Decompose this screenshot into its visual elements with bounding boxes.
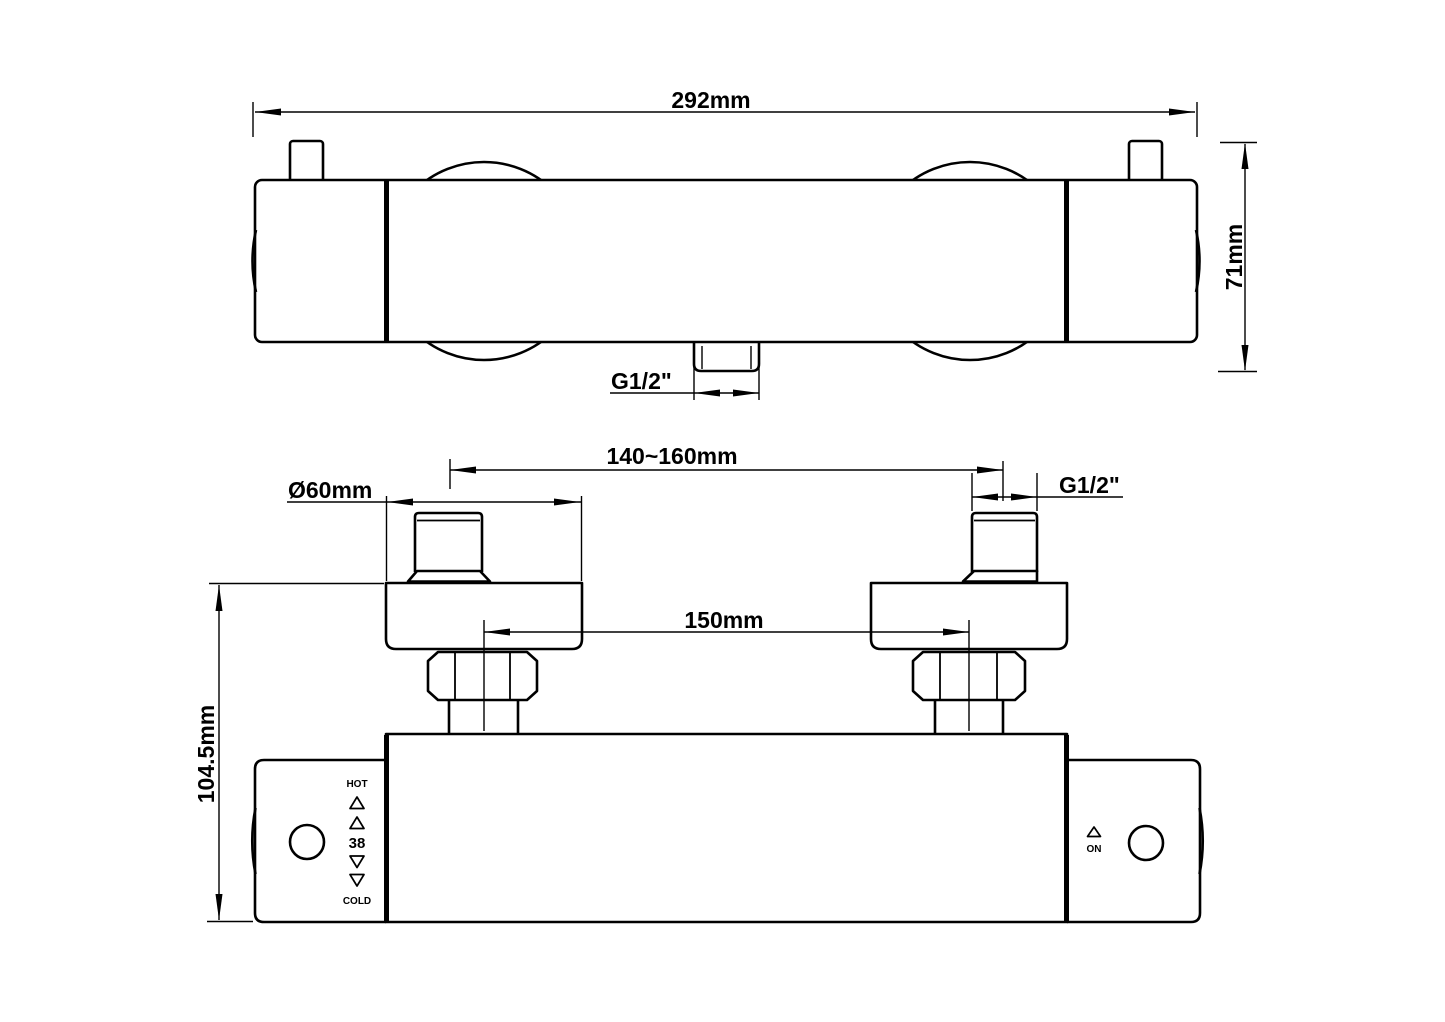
inlet-assembly-right xyxy=(871,513,1067,734)
dim-104-5-arrow-top xyxy=(216,585,223,611)
inlet-spacing-label: 150mm xyxy=(684,607,763,633)
dim-140-160-arrow-right xyxy=(977,467,1003,474)
pipe-connector-right xyxy=(972,513,1037,572)
cold-label: COLD xyxy=(343,896,371,907)
dim-292-arrow-left xyxy=(255,109,281,116)
dim-inlet-arrow-left xyxy=(972,494,998,501)
hot-label: HOT xyxy=(346,779,367,790)
temp-38-label: 38 xyxy=(349,835,366,852)
dim-140-160-arrow-left xyxy=(450,467,476,474)
outlet-thread-label: G1/2" xyxy=(611,368,672,394)
outlet-stub xyxy=(694,343,759,371)
flange-diameter-label: Ø60mm xyxy=(288,477,372,503)
dim-71-arrow-top xyxy=(1242,143,1249,169)
dim-60-arrow-right xyxy=(554,499,580,506)
dim-292: 292mm xyxy=(253,87,1197,137)
dim-inlet-arrow-right xyxy=(1011,494,1037,501)
flow-endcap-right xyxy=(1067,760,1200,922)
top-view: 292mm 71mm G1/2" xyxy=(253,87,1258,400)
dim-140-160: 140~160mm xyxy=(450,443,1003,501)
inlet-thread-label: G1/2" xyxy=(1059,472,1120,498)
on-label: ON xyxy=(1087,844,1102,855)
technical-drawing-page: 292mm 71mm G1/2" xyxy=(0,0,1445,1022)
valve-body-front xyxy=(386,734,1067,922)
dim-104-5-arrow-bottom xyxy=(216,894,223,920)
mount-tab-right xyxy=(1129,141,1162,182)
shower-valve-drawing: 292mm 71mm G1/2" xyxy=(0,0,1445,1022)
front-view: HOT 38 COLD ON 140~160mm Ø60mm xyxy=(193,443,1203,922)
dim-60-arrow-left xyxy=(387,499,413,506)
mount-tab-left xyxy=(290,141,323,182)
eccentric-skirt-left xyxy=(408,571,490,582)
pipe-spacing-label: 140~160mm xyxy=(606,443,737,469)
dim-292-arrow-right xyxy=(1169,109,1195,116)
dim-292-label: 292mm xyxy=(671,87,750,113)
pipe-connector-left xyxy=(415,513,482,572)
dim-71: 71mm xyxy=(1218,143,1257,372)
dim-71-arrow-bottom xyxy=(1242,345,1249,371)
valve-body-top xyxy=(255,180,1197,342)
dim-71-label: 71mm xyxy=(1221,224,1247,290)
eccentric-skirt-right xyxy=(963,571,1037,582)
inlet-assembly-left xyxy=(386,513,582,734)
dim-inlet-thread: G1/2" xyxy=(972,472,1123,511)
dim-outlet-arrow-left xyxy=(694,390,720,397)
hex-nut-left xyxy=(428,652,537,700)
dim-outlet-arrow-right xyxy=(733,390,759,397)
height-label: 104.5mm xyxy=(193,705,219,803)
